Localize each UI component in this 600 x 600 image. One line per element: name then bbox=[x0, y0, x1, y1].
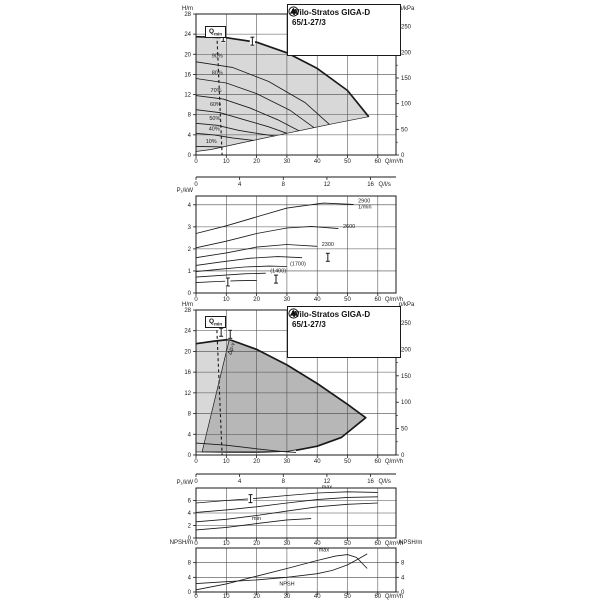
svg-text:Q/l/s: Q/l/s bbox=[379, 182, 391, 188]
svg-text:10: 10 bbox=[223, 594, 230, 600]
curve-label: 2600 bbox=[343, 224, 355, 230]
svg-text:10: 10 bbox=[223, 159, 230, 165]
svg-text:30: 30 bbox=[284, 159, 291, 165]
svg-text:10: 10 bbox=[223, 297, 230, 303]
svg-text:50: 50 bbox=[344, 297, 351, 303]
svg-text:6: 6 bbox=[188, 499, 192, 505]
curve-label: 1/min bbox=[358, 205, 371, 211]
svg-text:8: 8 bbox=[188, 412, 192, 418]
svg-text:p/kPa: p/kPa bbox=[399, 302, 415, 308]
svg-text:4: 4 bbox=[188, 432, 192, 438]
curve-label: 10% bbox=[206, 139, 217, 145]
svg-text:20: 20 bbox=[253, 594, 260, 600]
svg-text:30: 30 bbox=[284, 594, 291, 600]
pump-icon bbox=[288, 6, 299, 17]
svg-text:50: 50 bbox=[344, 594, 351, 600]
pump-datasheet: 90%80%70%60%50%40%10%0102030405060Q/m³/h… bbox=[0, 0, 600, 600]
curve-label: 80% bbox=[212, 70, 223, 76]
svg-text:0: 0 bbox=[194, 594, 198, 600]
svg-text:4: 4 bbox=[188, 511, 192, 517]
curve-label: min bbox=[252, 516, 261, 522]
svg-text:4: 4 bbox=[188, 203, 192, 209]
pump-icon bbox=[288, 308, 299, 319]
svg-text:20: 20 bbox=[184, 349, 191, 355]
svg-text:NPSH/m: NPSH/m bbox=[170, 540, 193, 546]
svg-text:NPSH/m: NPSH/m bbox=[399, 540, 422, 546]
svg-text:20: 20 bbox=[253, 297, 260, 303]
svg-text:40: 40 bbox=[314, 541, 321, 547]
curve-label: max bbox=[322, 485, 333, 491]
svg-text:0: 0 bbox=[401, 453, 405, 459]
qmin-badge-top: Qmin bbox=[205, 26, 226, 38]
curve-2900 bbox=[196, 203, 354, 233]
svg-text:12: 12 bbox=[184, 93, 191, 99]
svg-text:40: 40 bbox=[314, 459, 321, 465]
svg-text:0: 0 bbox=[194, 297, 198, 303]
svg-text:0: 0 bbox=[188, 153, 192, 159]
svg-text:4: 4 bbox=[188, 575, 192, 581]
svg-text:24: 24 bbox=[184, 329, 191, 335]
pump-model: Wilo-Stratos GIGA-D bbox=[292, 310, 396, 320]
svg-text:8: 8 bbox=[188, 561, 192, 567]
pump-model: Wilo-Stratos GIGA-D bbox=[292, 8, 396, 18]
chart-power-vs-flow-bottom: maxmin0102030405060Q/m³/h0246P₁/kW bbox=[177, 480, 404, 547]
svg-text:8: 8 bbox=[401, 561, 405, 567]
svg-text:50: 50 bbox=[344, 541, 351, 547]
svg-text:10: 10 bbox=[223, 459, 230, 465]
svg-text:Q/l/s: Q/l/s bbox=[379, 479, 391, 485]
qmin-label-sub: min bbox=[214, 321, 222, 326]
svg-text:0: 0 bbox=[194, 479, 198, 485]
svg-text:60: 60 bbox=[374, 297, 381, 303]
svg-text:40: 40 bbox=[314, 594, 321, 600]
svg-text:10: 10 bbox=[223, 541, 230, 547]
svg-text:250: 250 bbox=[401, 25, 412, 31]
svg-text:28: 28 bbox=[184, 12, 191, 18]
svg-text:0: 0 bbox=[188, 453, 192, 459]
svg-text:Q/m³/h: Q/m³/h bbox=[385, 159, 403, 165]
svg-text:0: 0 bbox=[194, 541, 198, 547]
curve-label: 2300 bbox=[322, 242, 334, 248]
svg-text:4: 4 bbox=[188, 133, 192, 139]
svg-text:8: 8 bbox=[282, 182, 286, 188]
svg-text:20: 20 bbox=[253, 541, 260, 547]
svg-text:3: 3 bbox=[188, 225, 192, 231]
svg-text:100: 100 bbox=[401, 102, 412, 108]
svg-text:30: 30 bbox=[284, 297, 291, 303]
svg-text:1: 1 bbox=[188, 269, 192, 275]
svg-text:60: 60 bbox=[374, 541, 381, 547]
svg-text:16: 16 bbox=[184, 72, 191, 78]
svg-text:H/m: H/m bbox=[182, 6, 193, 12]
curve-(1400) bbox=[196, 273, 266, 277]
svg-text:4: 4 bbox=[238, 182, 242, 188]
svg-text:200: 200 bbox=[401, 347, 412, 353]
pump-charts-canvas: 90%80%70%60%50%40%10%0102030405060Q/m³/h… bbox=[0, 0, 600, 600]
svg-text:8: 8 bbox=[282, 479, 286, 485]
svg-text:30: 30 bbox=[284, 459, 291, 465]
curve-label: 40% bbox=[209, 126, 220, 132]
svg-text:20: 20 bbox=[184, 52, 191, 58]
svg-text:16: 16 bbox=[367, 479, 374, 485]
svg-text:4: 4 bbox=[401, 575, 405, 581]
svg-text:16: 16 bbox=[367, 182, 374, 188]
svg-text:200: 200 bbox=[401, 50, 412, 56]
svg-text:100: 100 bbox=[401, 400, 412, 406]
svg-text:2: 2 bbox=[188, 247, 192, 253]
svg-text:150: 150 bbox=[401, 374, 412, 380]
svg-text:150: 150 bbox=[401, 76, 412, 82]
svg-text:12: 12 bbox=[184, 391, 191, 397]
svg-text:24: 24 bbox=[184, 32, 191, 38]
pump-size: 65/1-27/3 bbox=[292, 320, 396, 330]
chart-npsh-vs-flow: maxNPSH0102030405060Q/m³/h048NPSH/m048NP… bbox=[170, 540, 423, 600]
pump-title-box-top: Wilo-Stratos GIGA-D 65/1-27/3 bbox=[287, 4, 401, 56]
svg-text:P₁/kW: P₁/kW bbox=[177, 480, 194, 486]
svg-text:50: 50 bbox=[401, 427, 408, 433]
svg-text:Q/m³/h: Q/m³/h bbox=[385, 459, 403, 465]
svg-text:20: 20 bbox=[253, 459, 260, 465]
pump-title-box-bottom: Wilo-Stratos GIGA-D 65/1-27/3 bbox=[287, 306, 401, 358]
svg-text:60: 60 bbox=[374, 159, 381, 165]
svg-text:0: 0 bbox=[194, 459, 198, 465]
svg-text:40: 40 bbox=[314, 159, 321, 165]
curve-label: NPSH bbox=[279, 581, 294, 587]
svg-text:0: 0 bbox=[188, 291, 192, 297]
svg-text:p/kPa: p/kPa bbox=[399, 6, 415, 12]
curve-label: (1700) bbox=[290, 262, 306, 268]
svg-text:8: 8 bbox=[188, 113, 192, 119]
svg-text:0: 0 bbox=[401, 590, 405, 596]
svg-text:H/m: H/m bbox=[182, 302, 193, 308]
svg-text:40: 40 bbox=[314, 297, 321, 303]
svg-text:28: 28 bbox=[184, 308, 191, 314]
svg-text:60: 60 bbox=[374, 459, 381, 465]
curve-label: 50% bbox=[209, 116, 220, 122]
svg-text:50: 50 bbox=[401, 127, 408, 133]
svg-text:0: 0 bbox=[401, 153, 405, 159]
svg-text:0: 0 bbox=[188, 590, 192, 596]
svg-text:20: 20 bbox=[253, 159, 260, 165]
svg-text:P₁/kW: P₁/kW bbox=[177, 188, 194, 194]
curve-unlabeled bbox=[196, 257, 302, 266]
svg-text:0: 0 bbox=[194, 182, 198, 188]
curve-label: max bbox=[319, 548, 330, 554]
curve-label: (1400) bbox=[270, 268, 286, 274]
svg-text:30: 30 bbox=[284, 541, 291, 547]
svg-text:60: 60 bbox=[374, 594, 381, 600]
svg-text:12: 12 bbox=[324, 182, 331, 188]
svg-text:4: 4 bbox=[238, 479, 242, 485]
curve-10% bbox=[196, 146, 223, 147]
svg-text:2: 2 bbox=[188, 524, 192, 530]
svg-text:250: 250 bbox=[401, 321, 412, 327]
pump-size: 65/1-27/3 bbox=[292, 18, 396, 28]
chart-power-vs-flow-top: 29001/min26002300(1700)(1400)01020304050… bbox=[177, 188, 404, 303]
qmin-badge-bottom: Qmin bbox=[205, 316, 226, 328]
qmin-label-sub: min bbox=[214, 31, 222, 36]
svg-text:50: 50 bbox=[344, 159, 351, 165]
svg-text:0: 0 bbox=[194, 159, 198, 165]
curve-NPSH bbox=[196, 554, 367, 584]
svg-text:50: 50 bbox=[344, 459, 351, 465]
svg-text:16: 16 bbox=[184, 370, 191, 376]
curve-label: 70% bbox=[211, 88, 222, 94]
